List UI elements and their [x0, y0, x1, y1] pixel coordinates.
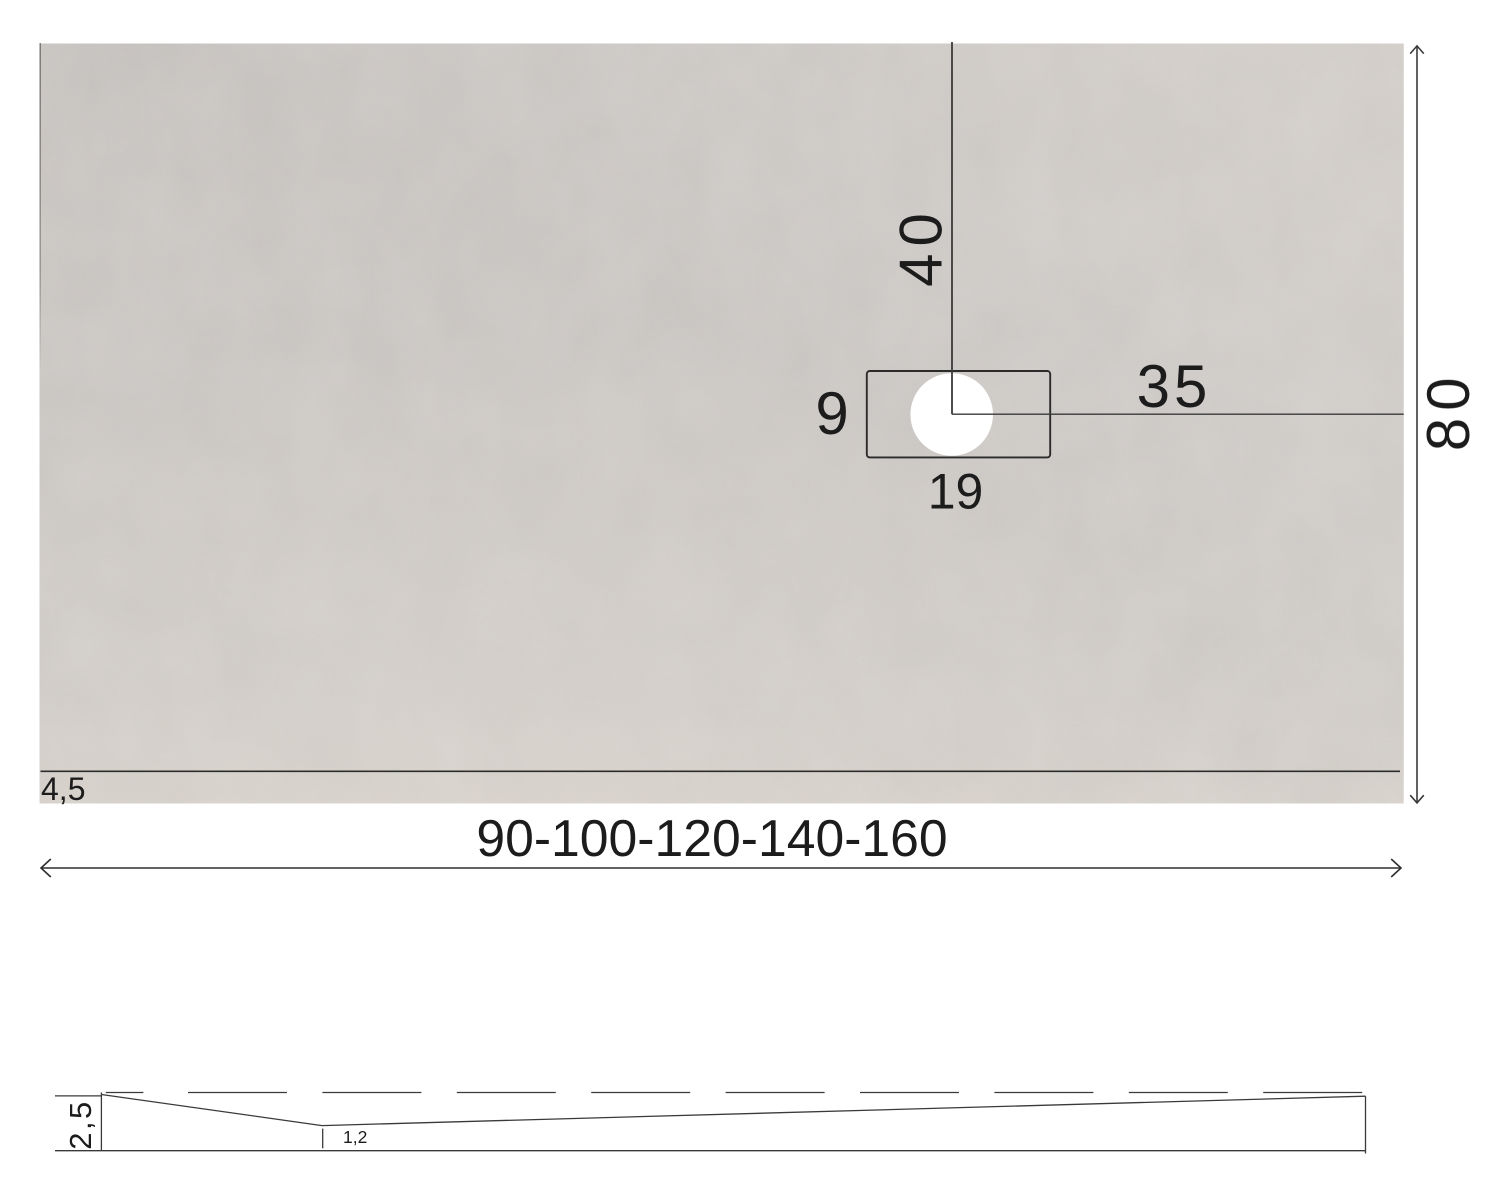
svg-text:2,5: 2,5: [63, 1099, 98, 1150]
svg-text:19: 19: [928, 464, 984, 520]
svg-text:90-100-120-140-160: 90-100-120-140-160: [476, 809, 947, 867]
svg-text:4,5: 4,5: [41, 771, 85, 807]
svg-text:1,2: 1,2: [343, 1127, 367, 1147]
svg-text:9: 9: [815, 380, 848, 447]
svg-text:40: 40: [888, 206, 955, 287]
svg-text:80: 80: [1415, 370, 1482, 451]
svg-text:35: 35: [1137, 353, 1212, 420]
